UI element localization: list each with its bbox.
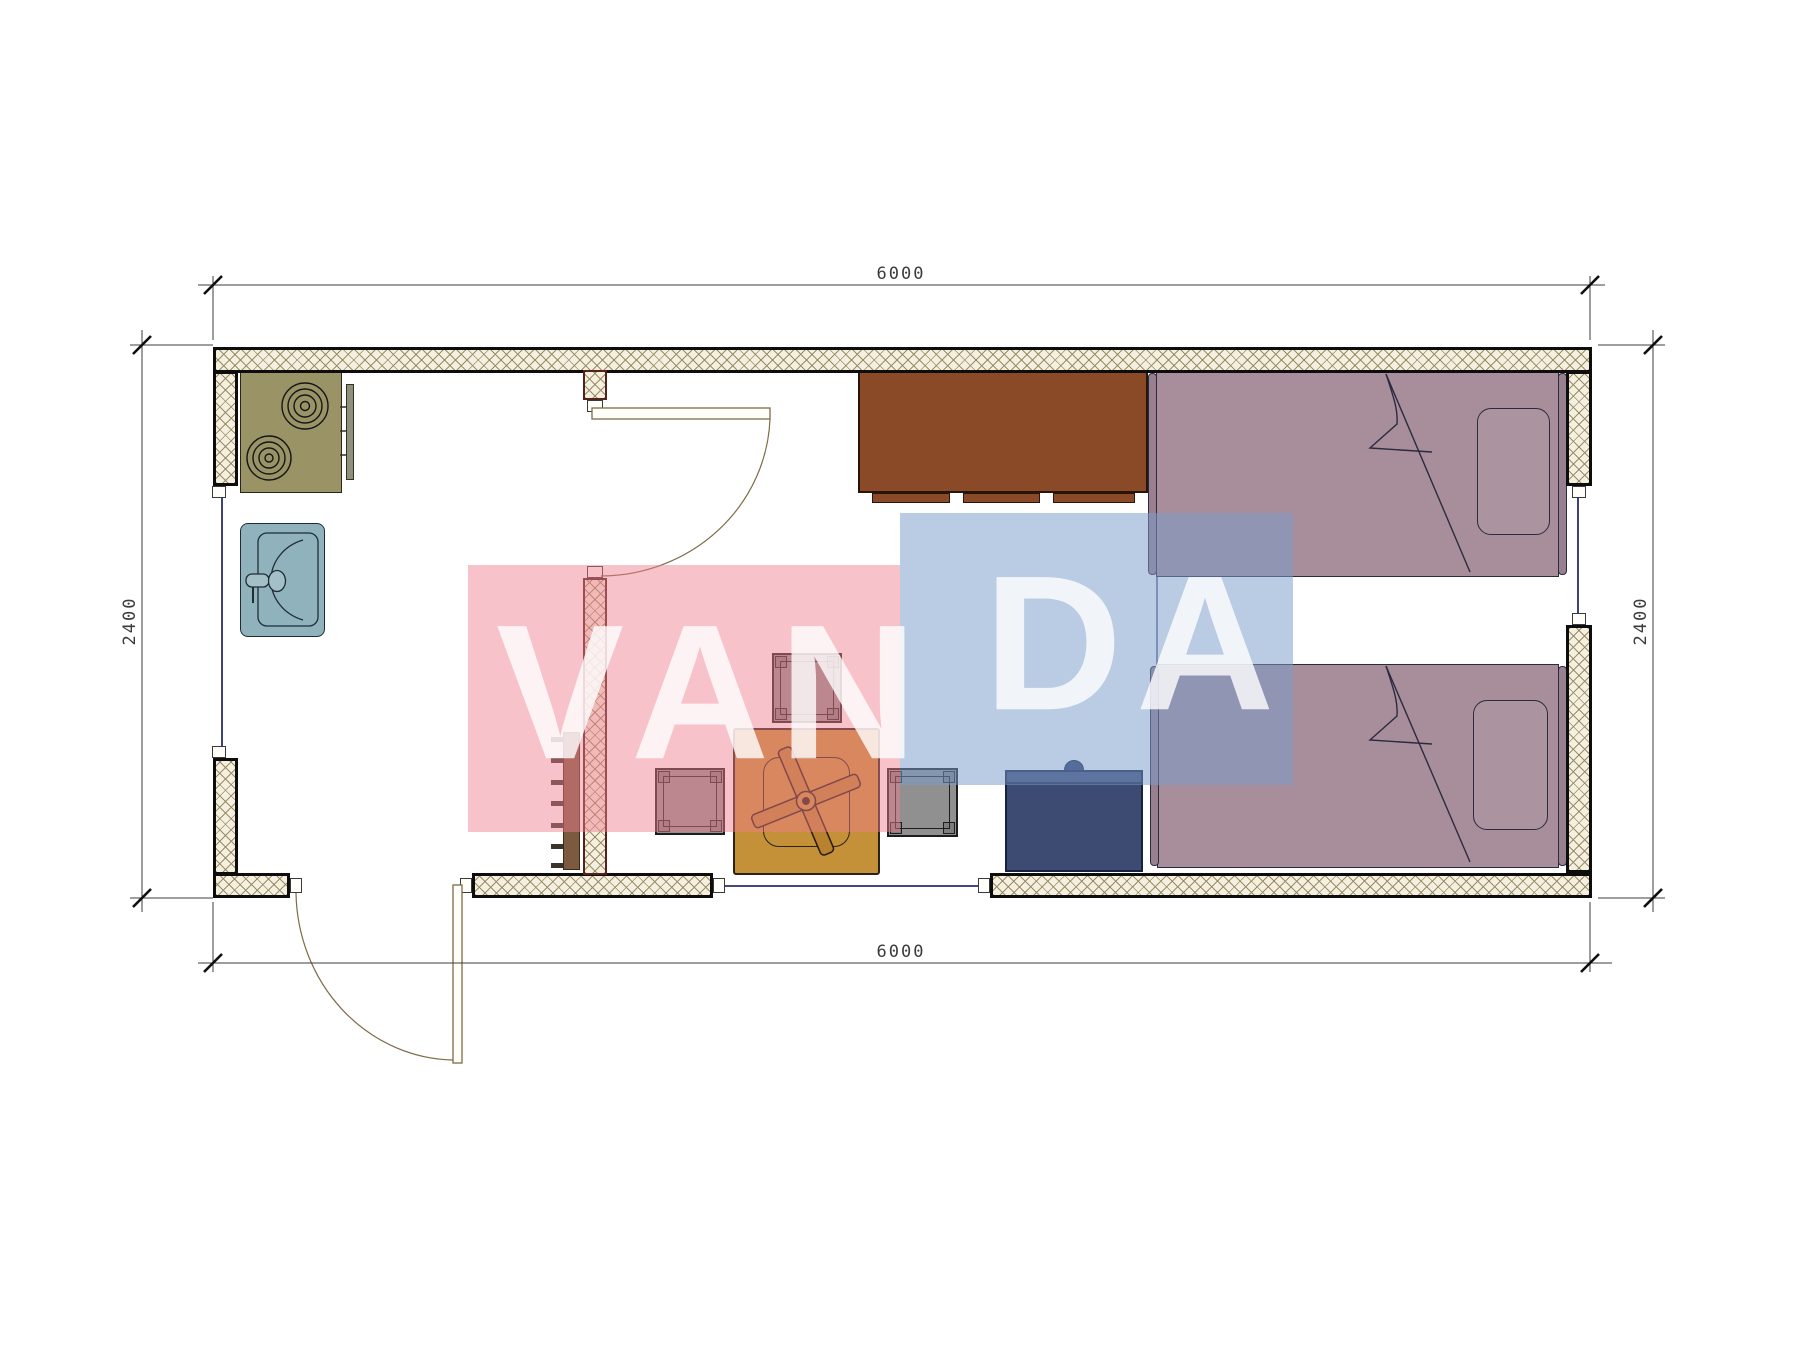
stove-burner-icon xyxy=(247,383,328,480)
dimension-label-right: 2400 xyxy=(1631,597,1651,646)
bed-bottom-blanket-fold xyxy=(1370,666,1470,862)
entry-door-leaf xyxy=(453,885,462,1063)
dimension-label-bottom: 6000 xyxy=(877,942,926,962)
dimension-label-left: 2400 xyxy=(120,597,140,646)
entry-door-swing-arc xyxy=(296,893,453,1060)
bed-top-blanket-fold xyxy=(1370,374,1470,572)
dimension-label-top: 6000 xyxy=(877,264,926,284)
watermark-letter-d: D xyxy=(984,547,1123,739)
watermark-letter-v: V xyxy=(496,596,624,788)
stove-control-ticks xyxy=(340,407,346,455)
interior-door-swing-arc xyxy=(601,419,770,576)
floor-plan-canvas: 6000 6000 2400 2400 V A N D A xyxy=(0,0,1800,1350)
sink-faucet-icon xyxy=(246,571,286,604)
watermark-letter-a1: A xyxy=(631,596,770,788)
watermark-letter-a2: A xyxy=(1136,547,1275,739)
watermark-letter-n: N xyxy=(779,596,918,788)
interior-door-leaf xyxy=(592,408,770,419)
